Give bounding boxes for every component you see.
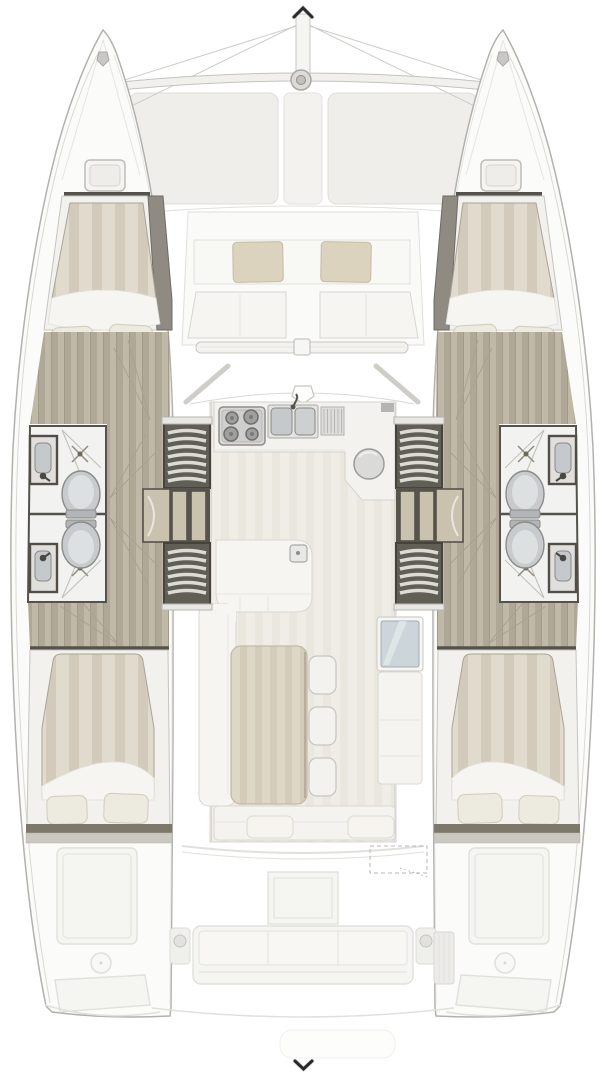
traveler-car <box>294 339 310 355</box>
chevron-down-icon[interactable] <box>295 1061 312 1069</box>
side-cabinet <box>378 672 422 784</box>
transom-line <box>152 1008 454 1017</box>
helm-seat <box>434 932 454 984</box>
forward-cushion <box>321 242 372 283</box>
nav-station <box>377 617 423 784</box>
galley-sink <box>268 394 318 438</box>
drain-rack <box>321 407 344 435</box>
cockpit-table <box>268 872 338 924</box>
dinette <box>231 646 336 804</box>
aft-seat-back <box>247 816 293 838</box>
aft-seat-back <box>348 816 394 838</box>
forward-backrest <box>194 240 410 284</box>
trampoline-center-strip <box>284 93 322 204</box>
winch-post <box>416 928 436 964</box>
foredeck-beam-line <box>150 206 456 212</box>
floorplan <box>0 0 606 1080</box>
windlass <box>291 70 311 90</box>
forward-cockpit <box>182 212 424 345</box>
round-sink <box>354 449 384 479</box>
coachroof-corner-left <box>186 366 228 402</box>
aft-cockpit <box>152 846 454 1058</box>
winch-post <box>170 928 190 964</box>
swim-platform-ghost <box>280 1030 395 1058</box>
stool <box>309 758 336 796</box>
salon-aft-band <box>214 806 395 840</box>
forward-cushion <box>233 242 284 283</box>
stool <box>309 656 336 694</box>
stove <box>219 407 265 445</box>
coachroof-front <box>186 339 418 404</box>
counter-item <box>381 403 394 412</box>
forward-bench-right <box>320 292 418 338</box>
dinette-table <box>231 646 307 804</box>
stool <box>309 707 336 745</box>
trampoline-left <box>129 93 278 204</box>
forward-bench-left <box>188 292 286 338</box>
coachroof-corner-right <box>376 366 418 402</box>
salon <box>199 394 423 842</box>
aft-bench <box>193 926 413 984</box>
trampoline-right <box>328 93 477 204</box>
